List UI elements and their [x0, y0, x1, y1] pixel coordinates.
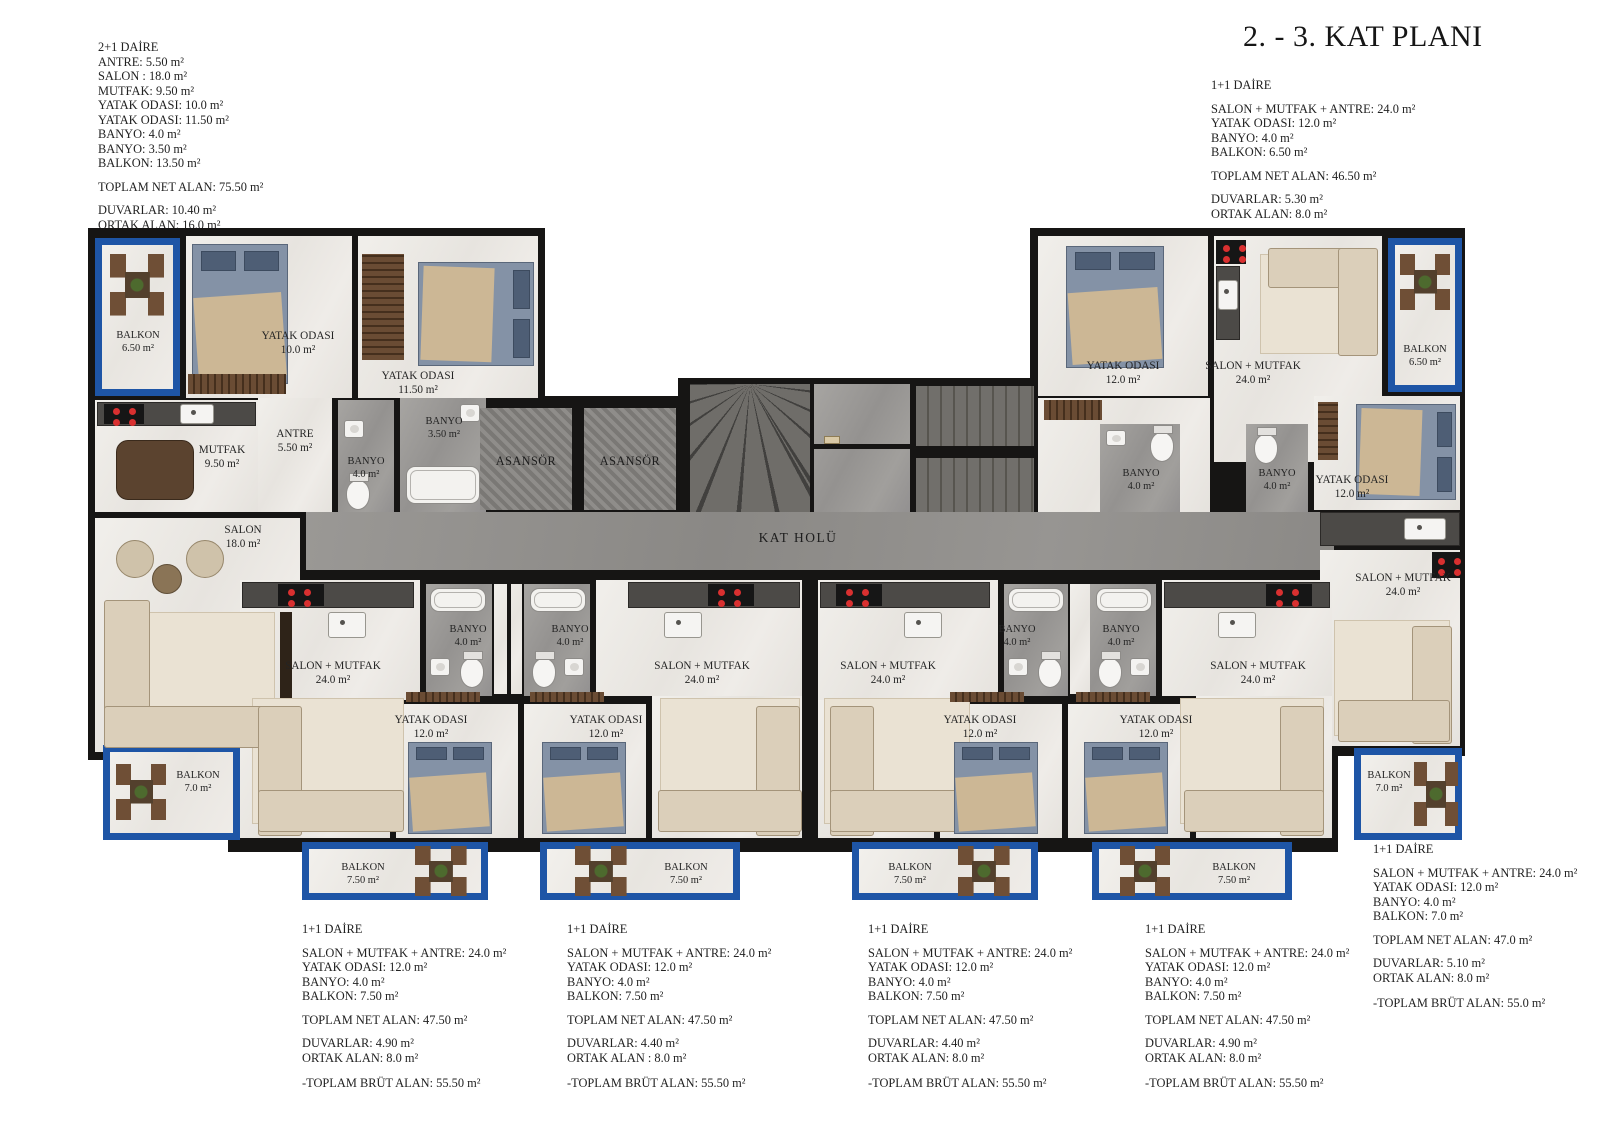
spec-walls-area: DUVARLAR: 5.10 m² [1373, 956, 1577, 971]
wardrobe-icon [1044, 400, 1102, 420]
toilet-icon [460, 658, 484, 688]
spec-line: BANYO: 4.0 m² [302, 975, 506, 990]
room-label-balkon-75: BALKON 7.50 m² [328, 862, 398, 887]
sofa-icon [104, 706, 268, 748]
balcony-furniture-icon [958, 846, 1010, 896]
stove-icon [836, 584, 882, 606]
balcony-furniture-icon [575, 846, 627, 896]
spec-line: BANYO: 4.0 m² [1211, 131, 1415, 146]
spec-heading: 1+1 DAİRE [1211, 78, 1415, 93]
wall-segment [814, 444, 910, 449]
bed-icon [954, 742, 1038, 834]
stove-icon [104, 404, 144, 424]
spec-line: SALON + MUTFAK + ANTRE: 24.0 m² [302, 946, 506, 961]
balcony-furniture-icon [1120, 846, 1170, 896]
spec-block-2plus1: 2+1 DAİRE ANTRE: 5.50 m²SALON : 18.0 m²M… [98, 40, 276, 258]
wardrobe-icon [1318, 402, 1338, 460]
room-label-salon: SALON 18.0 m² [188, 524, 298, 551]
spec-line: BANYO: 4.0 m² [98, 127, 276, 142]
spec-line: SALON + MUTFAK + ANTRE: 24.0 m² [868, 946, 1072, 961]
sink-icon [1218, 280, 1238, 310]
sofa-icon [1338, 248, 1378, 356]
room-label-yatak-10: YATAK ODASI 10.0 m² [238, 330, 358, 357]
toilet-icon [1150, 432, 1174, 462]
room-label-banyo-35: BANYO 3.50 m² [404, 416, 484, 441]
spec-common-area: ORTAK ALAN: 8.0 m² [1373, 971, 1577, 986]
sink-icon [1218, 612, 1256, 638]
spec-common-area: ORTAK ALAN: 8.0 m² [1145, 1051, 1349, 1066]
bathtub-icon [430, 588, 486, 612]
spec-walls-area: DUVARLAR: 10.40 m² [98, 203, 276, 218]
room-label-banyo: BANYO 4.0 m² [984, 624, 1050, 649]
door-icon [824, 436, 840, 444]
spec-line: BALKON: 6.50 m² [1211, 145, 1415, 160]
bed-icon [418, 262, 534, 366]
washbasin-icon [1130, 658, 1150, 676]
room-label-yatak-12: YATAK ODASI 12.0 m² [1292, 474, 1412, 501]
spec-line: YATAK ODASI: 12.0 m² [868, 960, 1072, 975]
spec-common-area: ORTAK ALAN: 8.0 m² [1211, 207, 1415, 222]
washbasin-icon [564, 658, 584, 676]
spec-net-area: TOPLAM NET ALAN: 47.50 m² [1145, 1013, 1349, 1028]
spec-line: BANYO: 3.50 m² [98, 142, 276, 157]
sofa-icon [658, 790, 802, 832]
spec-block-bottom-1: 1+1 DAİRE SALON + MUTFAK + ANTRE: 24.0 m… [302, 922, 506, 1091]
spec-line: SALON + MUTFAK + ANTRE: 24.0 m² [567, 946, 771, 961]
spec-gross-area: -TOPLAM BRÜT ALAN: 55.0 m² [1373, 996, 1577, 1011]
stove-icon [1216, 240, 1246, 264]
room-label-salon-mutfak: SALON + MUTFAK 24.0 m² [818, 660, 958, 687]
room-label-balkon-75: BALKON 7.50 m² [1199, 862, 1269, 887]
spec-line: SALON + MUTFAK + ANTRE: 24.0 m² [1145, 946, 1349, 961]
sofa-icon [1184, 790, 1324, 832]
dining-table-icon [116, 440, 194, 500]
spec-room-lines: SALON + MUTFAK + ANTRE: 24.0 m²YATAK ODA… [1145, 946, 1349, 1004]
room-label-banyo: BANYO 4.0 m² [537, 624, 603, 649]
coffee-table-icon [152, 564, 182, 594]
wardrobe-icon [406, 692, 480, 702]
washbasin-icon [1008, 658, 1028, 676]
room-label-antre: ANTRE 5.50 m² [254, 428, 336, 455]
balcony-furniture-icon [116, 764, 166, 820]
spec-room-lines: ANTRE: 5.50 m²SALON : 18.0 m²MUTFAK: 9.5… [98, 55, 276, 171]
washbasin-icon [1106, 430, 1126, 446]
room-label-yatak-12: YATAK ODASI 12.0 m² [371, 714, 491, 741]
toilet-icon [1038, 658, 1062, 688]
room-label-yatak-12: YATAK ODASI 12.0 m² [546, 714, 666, 741]
wardrobe-icon [1076, 692, 1150, 702]
spec-gross-area: -TOPLAM BRÜT ALAN: 55.50 m² [1145, 1076, 1349, 1091]
stove-icon [1266, 584, 1312, 606]
toilet-icon [532, 658, 556, 688]
spec-gross-area: -TOPLAM BRÜT ALAN: 55.50 m² [868, 1076, 1072, 1091]
room-label-balkon-75: BALKON 7.50 m² [651, 862, 721, 887]
stair-divider [916, 450, 1034, 456]
room-label-mutfak: MUTFAK 9.50 m² [188, 444, 256, 471]
wardrobe-icon [362, 254, 404, 360]
spec-line: BANYO: 4.0 m² [567, 975, 771, 990]
stair-run-upper [916, 386, 1034, 446]
stove-icon [708, 584, 754, 606]
spec-gross-area: -TOPLAM BRÜT ALAN: 55.50 m² [567, 1076, 771, 1091]
toilet-icon [1098, 658, 1122, 688]
sofa-icon [830, 790, 970, 832]
floor-plan-sheet: { "title": "2. - 3. KAT PLANI", "spec_bl… [0, 0, 1600, 1131]
spec-line: YATAK ODASI: 11.50 m² [98, 113, 276, 128]
wall-segment [507, 584, 511, 694]
room-label-balkon: BALKON 6.50 m² [1390, 344, 1460, 369]
balcony-furniture-icon [415, 846, 467, 896]
spec-walls-area: DUVARLAR: 5.30 m² [1211, 192, 1415, 207]
elevator-label: ASANSÖR [480, 454, 572, 469]
spec-line: BANYO: 4.0 m² [868, 975, 1072, 990]
spec-net-area: TOPLAM NET ALAN: 47.50 m² [567, 1013, 771, 1028]
spec-block-bottom-3: 1+1 DAİRE SALON + MUTFAK + ANTRE: 24.0 m… [868, 922, 1072, 1091]
spec-common-area: ORTAK ALAN: 8.0 m² [868, 1051, 1072, 1066]
stair-landing [814, 384, 910, 514]
spec-gross-area: -TOPLAM BRÜT ALAN: 55.50 m² [302, 1076, 506, 1091]
toilet-icon [346, 480, 370, 510]
sink-icon [328, 612, 366, 638]
sink-icon [904, 612, 942, 638]
room-label-yatak-12: YATAK ODASI 12.0 m² [920, 714, 1040, 741]
spec-heading: 1+1 DAİRE [302, 922, 506, 937]
toilet-icon [1254, 434, 1278, 464]
stair-run-lower [916, 458, 1034, 516]
room-label-yatak-115: YATAK ODASI 11.50 m² [338, 370, 498, 397]
bathtub-icon [1008, 588, 1064, 612]
stove-icon [278, 584, 324, 606]
spec-line: BALKON: 7.50 m² [567, 989, 771, 1004]
room-label-balkon-7: BALKON 7.0 m² [163, 770, 233, 795]
spec-line: BALKON: 7.0 m² [1373, 909, 1577, 924]
spec-line: YATAK ODASI: 12.0 m² [1211, 116, 1415, 131]
page-title: 2. - 3. KAT PLANI [1243, 20, 1483, 54]
room-label-banyo: BANYO 4.0 m² [1106, 468, 1176, 493]
spec-line: BANYO: 4.0 m² [1145, 975, 1349, 990]
spec-net-area: TOPLAM NET ALAN: 47.50 m² [302, 1013, 506, 1028]
bed-icon [542, 742, 626, 834]
spec-net-area: TOPLAM NET ALAN: 46.50 m² [1211, 169, 1415, 184]
balcony-furniture-icon [1400, 254, 1450, 310]
elevator-label: ASANSÖR [584, 454, 676, 469]
spec-net-area: TOPLAM NET ALAN: 47.50 m² [868, 1013, 1072, 1028]
spec-line: YATAK ODASI: 10.0 m² [98, 98, 276, 113]
spec-heading: 2+1 DAİRE [98, 40, 276, 55]
room-label-salon-mutfak: SALON + MUTFAK 24.0 m² [1338, 572, 1468, 599]
bed-icon [192, 244, 288, 384]
room-label-salon-mutfak: SALON + MUTFAK 24.0 m² [632, 660, 772, 687]
spec-common-area: ORTAK ALAN: 8.0 m² [302, 1051, 506, 1066]
sofa-icon [258, 790, 404, 832]
spec-line: ANTRE: 5.50 m² [98, 55, 276, 70]
spec-walls-area: DUVARLAR: 4.40 m² [567, 1036, 771, 1051]
winder-stair [690, 384, 810, 514]
spec-room-lines: SALON + MUTFAK + ANTRE: 24.0 m²YATAK ODA… [1211, 102, 1415, 160]
bathtub-icon [530, 588, 586, 612]
spec-room-lines: SALON + MUTFAK + ANTRE: 24.0 m²YATAK ODA… [567, 946, 771, 1004]
spec-block-bottom-2: 1+1 DAİRE SALON + MUTFAK + ANTRE: 24.0 m… [567, 922, 771, 1091]
floor-plan: BALKON 6.50 m² YATAK ODASI 10.0 m² YATAK… [88, 228, 1465, 904]
spec-walls-area: DUVARLAR: 4.90 m² [302, 1036, 506, 1051]
spec-line: BALKON: 13.50 m² [98, 156, 276, 171]
spec-heading: 1+1 DAİRE [868, 922, 1072, 937]
room-label-balkon-7: BALKON 7.0 m² [1358, 770, 1420, 795]
room-label-banyo: BANYO 4.0 m² [326, 456, 406, 481]
spec-walls-area: DUVARLAR: 4.40 m² [868, 1036, 1072, 1051]
bed-icon [408, 742, 492, 834]
entry-hall-b3 [1070, 584, 1090, 694]
spec-room-lines: SALON + MUTFAK + ANTRE: 24.0 m²YATAK ODA… [868, 946, 1072, 1004]
wardrobe-icon [188, 374, 286, 394]
bathtub-icon [406, 466, 480, 504]
spec-walls-area: DUVARLAR: 4.90 m² [1145, 1036, 1349, 1051]
spec-net-area: TOPLAM NET ALAN: 47.0 m² [1373, 933, 1577, 948]
sink-icon [180, 404, 214, 424]
room-label-balkon: BALKON 6.50 m² [98, 330, 178, 355]
spec-line: BALKON: 7.50 m² [1145, 989, 1349, 1004]
spec-line: YATAK ODASI: 12.0 m² [567, 960, 771, 975]
room-label-yatak-12: YATAK ODASI 12.0 m² [1096, 714, 1216, 741]
bathtub-icon [1096, 588, 1152, 612]
spec-block-bottom-4: 1+1 DAİRE SALON + MUTFAK + ANTRE: 24.0 m… [1145, 922, 1349, 1091]
spec-heading: 1+1 DAİRE [567, 922, 771, 937]
corridor-label: KAT HOLÜ [718, 530, 878, 546]
spec-room-lines: SALON + MUTFAK + ANTRE: 24.0 m²YATAK ODA… [302, 946, 506, 1004]
wardrobe-icon [950, 692, 1024, 702]
room-label-banyo: BANYO 4.0 m² [1088, 624, 1154, 649]
armchair-icon [116, 540, 154, 578]
spec-heading: 1+1 DAİRE [1145, 922, 1349, 937]
spec-block-top-right: 1+1 DAİRE SALON + MUTFAK + ANTRE: 24.0 m… [1211, 78, 1415, 247]
spec-line: SALON + MUTFAK + ANTRE: 24.0 m² [1211, 102, 1415, 117]
room-label-salon-mutfak: SALON + MUTFAK 24.0 m² [1188, 660, 1328, 687]
wardrobe-icon [530, 692, 604, 702]
sofa-icon [1338, 700, 1450, 742]
sink-icon [664, 612, 702, 638]
room-label-balkon-75: BALKON 7.50 m² [875, 862, 945, 887]
spec-common-area: ORTAK ALAN : 8.0 m² [567, 1051, 771, 1066]
bed-icon [1066, 246, 1164, 368]
bed-icon [1084, 742, 1168, 834]
washbasin-icon [344, 420, 364, 438]
spec-net-area: TOPLAM NET ALAN: 75.50 m² [98, 180, 276, 195]
room-label-yatak-12: YATAK ODASI 12.0 m² [1048, 360, 1198, 387]
room-label-salon-mutfak: SALON + MUTFAK 24.0 m² [263, 660, 403, 687]
room-label-banyo: BANYO 4.0 m² [435, 624, 501, 649]
washbasin-icon [430, 658, 450, 676]
spec-line: BALKON: 7.50 m² [868, 989, 1072, 1004]
sink-icon [1404, 518, 1446, 540]
courtyard-void [545, 228, 1030, 378]
spec-line: BALKON: 7.50 m² [302, 989, 506, 1004]
room-label-salon-mutfak: SALON + MUTFAK 24.0 m² [1193, 360, 1313, 387]
spec-line: SALON : 18.0 m² [98, 69, 276, 84]
kitchen-counter-icon [242, 582, 414, 608]
spec-line: YATAK ODASI: 12.0 m² [1145, 960, 1349, 975]
balcony-furniture-icon [1414, 762, 1458, 826]
balcony-furniture-icon [110, 254, 164, 316]
spec-line: YATAK ODASI: 12.0 m² [302, 960, 506, 975]
spec-line: MUTFAK: 9.50 m² [98, 84, 276, 99]
